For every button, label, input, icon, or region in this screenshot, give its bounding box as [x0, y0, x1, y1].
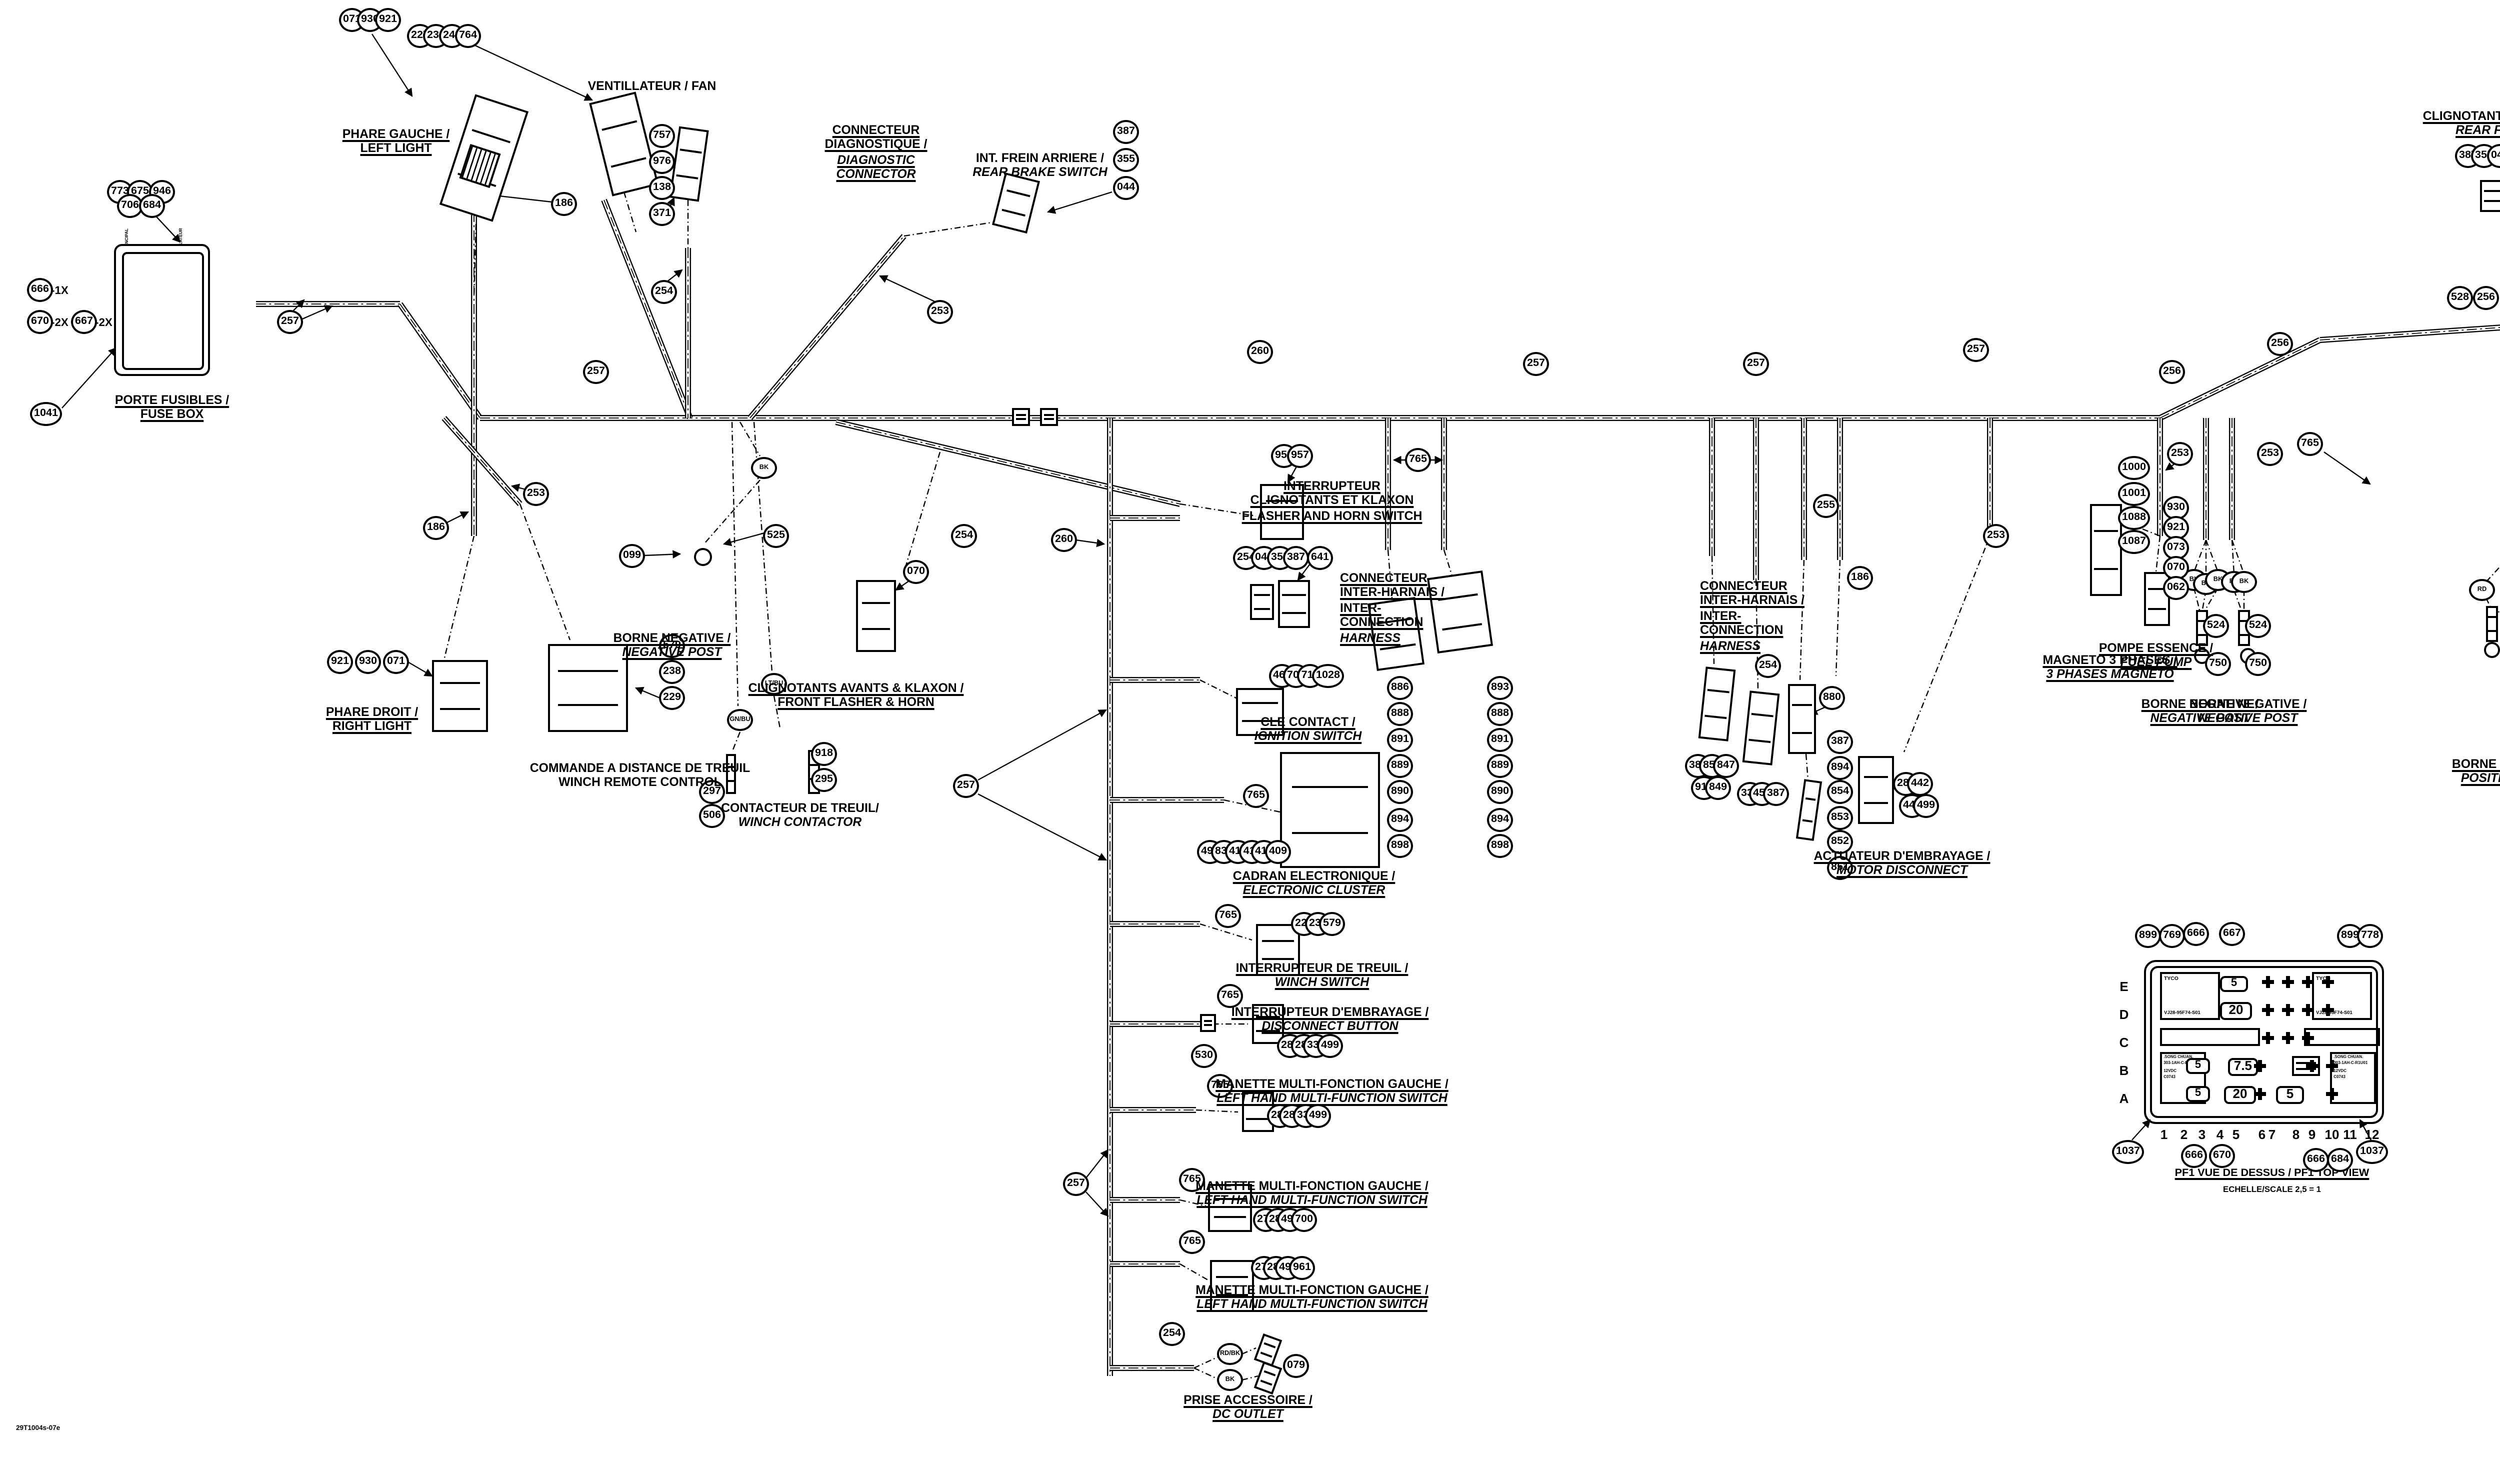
- callout-balloon-670: 670: [2209, 1144, 2235, 1168]
- callout-balloon-976: 976: [649, 150, 675, 174]
- callout-balloon-530: 530: [1191, 1044, 1217, 1068]
- leader-line: [2234, 590, 2242, 612]
- callout-balloon-684: 684: [139, 194, 165, 218]
- leader-line: [1242, 1376, 1258, 1380]
- callout-balloon-921: 921: [327, 650, 353, 674]
- pf1-column-number-5: 5: [2232, 1129, 2240, 1143]
- callout-balloon-253: 253: [927, 300, 953, 324]
- callout-balloon-894: 894: [1387, 808, 1413, 832]
- pf1-row-letter-B: B: [2119, 1065, 2129, 1079]
- pf1-relay-text: C0743: [2333, 1076, 2372, 1083]
- callout-arrow: [978, 794, 1106, 860]
- callout-balloon-666: 666: [2181, 1144, 2207, 1168]
- wiring-diagram-page: PF1 VUE DE DESSUS / PF1 TOP VIEW ECHELLE…: [0, 0, 2500, 1484]
- pf1-column-number-8: 8: [2292, 1129, 2300, 1143]
- label-line: LEFT LIGHT: [342, 143, 450, 158]
- callout-balloon-257: 257: [1063, 1172, 1089, 1196]
- component-label: PHARE DROIT /RIGHT LIGHT: [326, 706, 418, 735]
- callout-balloon-888: 888: [1387, 702, 1413, 726]
- label-line: CONNECTEUR: [825, 124, 927, 139]
- component-label: PHARE GAUCHE /LEFT LIGHT: [342, 128, 450, 157]
- callout-balloon-499: 499: [1913, 794, 1939, 818]
- callout-arrow: [1076, 540, 1104, 544]
- label-line: POMPE ESSENCE /: [2099, 642, 2213, 657]
- label-line: CLIGNOTANTS AVANTS & KLAXON /: [748, 682, 964, 697]
- pf1-relay-tyco: TYCOVJ28-95F74-S01: [2160, 972, 2220, 1020]
- callout-arrow: [472, 44, 592, 100]
- callout-balloon-260: 260: [1247, 340, 1273, 364]
- callout-balloon-1041: 1041: [30, 402, 62, 426]
- pf1-terminal-cross: [2322, 1004, 2334, 1016]
- label-line: CLIGNOTANTS ET KLAXON: [1242, 495, 1422, 510]
- callout-balloon-079: 079: [1283, 1354, 1309, 1378]
- component-label: CONNECTEURINTER-HARNAIS /INTER-CONNECTIO…: [1700, 580, 1804, 654]
- callout-balloon-229: 229: [659, 686, 685, 710]
- callout-balloon-889: 889: [1487, 754, 1513, 778]
- callout-arrow: [880, 276, 940, 304]
- label-line: CONNECTION: [1700, 624, 1804, 639]
- callout-balloon-387: 387: [1283, 546, 1309, 570]
- inline-connector: [1040, 408, 1058, 426]
- pf1-caption: PF1 VUE DE DESSUS / PF1 TOP VIEW ECHELLE…: [2175, 1168, 2369, 1197]
- callout-balloon-070: 070: [903, 560, 929, 584]
- pf1-caption-scale: ECHELLE/SCALE 2,5 = 1: [2175, 1183, 2369, 1198]
- callout-balloon-957: 957: [1287, 444, 1313, 468]
- component-label: CLIGNOTANTS AVANTS & KLAXON /FRONT FLASH…: [748, 682, 964, 711]
- callout-balloon-880: 880: [1819, 686, 1845, 710]
- magneto-connector: [2090, 504, 2122, 596]
- pf1-fuse-7.5: 7.5: [2228, 1058, 2258, 1076]
- callout-balloon-253: 253: [2167, 442, 2193, 466]
- callout-balloon-921: 921: [375, 8, 401, 32]
- callout-balloon-256: 256: [2473, 286, 2499, 310]
- label-line: INTER-: [1700, 609, 1804, 624]
- leader-line: [704, 480, 760, 544]
- callout-balloon-253: 253: [2257, 442, 2283, 466]
- label-line: VENTILLATEUR / FAN: [588, 80, 716, 95]
- label-line: MANETTE MULTI-FONCTION GAUCHE /: [1195, 1180, 1428, 1195]
- component-label: INTERRUPTEUR DE TREUIL /WINCH SWITCH: [1236, 962, 1408, 991]
- callout-balloon-849: 849: [1705, 776, 1731, 800]
- callout-balloon-260: 260: [1051, 528, 1077, 552]
- pf1-terminal-cross: [2254, 1088, 2266, 1100]
- component-label: VENTILLATEUR / FAN: [588, 80, 716, 95]
- label-line: INTER-HARNAIS /: [1700, 595, 1804, 610]
- pf1-terminal-cross: [2302, 1004, 2314, 1016]
- callout-balloon-666: 666: [2303, 1148, 2329, 1172]
- label-line: REAR BRAKE SWITCH: [972, 167, 1107, 182]
- label-line: REAR FLASHER: [2423, 125, 2500, 140]
- small-connector-641: [1278, 580, 1310, 628]
- callout-balloon-499: 499: [1317, 1034, 1343, 1058]
- label-line: LEFT HAND MULTI-FUNCTION SWITCH: [1215, 1093, 1448, 1108]
- callout-balloon-295: 295: [811, 768, 837, 792]
- label-line: MANETTE MULTI-FONCTION GAUCHE /: [1215, 1078, 1448, 1093]
- label-line: CONNECTEUR: [1700, 580, 1804, 595]
- pf1-fuse-20: 20: [2220, 1002, 2252, 1020]
- pf1-fuse-5: 5: [2186, 1086, 2210, 1102]
- pf1-relay-tyco: TYCOVJ28-95F74-S01: [2312, 972, 2372, 1020]
- callout-arrow: [300, 306, 332, 320]
- pf1-column-number-7: 7: [2268, 1129, 2276, 1143]
- pf1-fuse-5: 5: [2186, 1058, 2210, 1074]
- wire-color-tag-BK: BK: [2231, 571, 2257, 593]
- callout-balloon-891: 891: [1387, 728, 1413, 752]
- label-line: NEGATIVE POST: [2189, 713, 2307, 728]
- callout-balloon-1088: 1088: [2118, 506, 2150, 530]
- callout-balloon-853: 853: [1827, 806, 1853, 830]
- callout-balloon-847: 847: [1713, 754, 1739, 778]
- fuse-box-left: [114, 244, 210, 376]
- label-line: FUSE BOX: [115, 409, 229, 424]
- pf1-terminal-cross: [2262, 1004, 2274, 1016]
- callout-balloon-894: 894: [1827, 756, 1853, 780]
- component-label: CLE CONTACT /IGNITION SWITCH: [1254, 716, 1362, 745]
- label-line: CADRAN ELECTRONIQUE /: [1233, 870, 1395, 885]
- right-headlight-connector: [432, 660, 488, 732]
- label-line: CONNECTOR: [825, 168, 927, 183]
- callout-balloon-254: 254: [1159, 1322, 1185, 1346]
- label-line: INTERRUPTEUR DE TREUIL /: [1236, 962, 1408, 977]
- label-line: WINCH REMOTE CONTROL: [530, 777, 750, 792]
- callout-balloon-524: 524: [2245, 614, 2271, 638]
- callout-balloon-355: 355: [1113, 148, 1139, 172]
- callout-balloon-257: 257: [583, 360, 609, 384]
- pf1-relay-text: C0743: [2163, 1076, 2202, 1083]
- label-line: NEGATIVE POST: [613, 647, 731, 662]
- callout-balloon-254: 254: [951, 524, 977, 548]
- callout-balloon-765: 765: [1179, 1230, 1205, 1254]
- callout-balloon-886: 886: [1387, 676, 1413, 700]
- component-label: COMMANDE A DISTANCE DE TREUILWINCH REMOT…: [530, 762, 750, 791]
- label-line: FRONT FLASHER & HORN: [748, 697, 964, 712]
- leader-line: [1806, 754, 1808, 780]
- leader-line: [904, 452, 940, 572]
- label-line: MOTOR DISCONNECT: [1814, 865, 1990, 880]
- pf1-row-letter-C: C: [2119, 1037, 2129, 1051]
- pf1-terminal-cross: [2326, 1088, 2338, 1100]
- label-line: LEFT HAND MULTI-FUNCTION SWITCH: [1195, 1299, 1428, 1314]
- callout-balloon-524: 524: [2203, 614, 2229, 638]
- electronic-cluster: [1280, 752, 1380, 868]
- leader-line: [732, 732, 740, 752]
- pf1-row-letter-D: D: [2119, 1009, 2129, 1023]
- label-line: MANETTE MULTI-FONCTION GAUCHE /: [1195, 1284, 1428, 1299]
- positive-post: [2486, 606, 2498, 642]
- component-label: MANETTE MULTI-FONCTION GAUCHE /LEFT HAND…: [1215, 1078, 1448, 1107]
- label-line: INT. FREIN ARRIERE /: [972, 152, 1107, 167]
- negative-post-ring: [694, 548, 712, 566]
- leader-line: [2194, 540, 2206, 572]
- pf1-relay-text: 303-1AH-C-R1U01 12VDC: [2333, 1062, 2372, 1076]
- label-line: CLE CONTACT /: [1254, 716, 1362, 731]
- callout-arrow: [372, 34, 412, 96]
- label-line: BORNE NEGATIVE /: [2189, 698, 2307, 713]
- pf1-column-number-3: 3: [2198, 1129, 2206, 1143]
- callout-balloon-700: 700: [1291, 1208, 1317, 1232]
- callout-balloon-255: 255: [1813, 494, 1839, 518]
- callout-balloon-186: 186: [551, 192, 577, 216]
- component-label: CONTACTEUR DE TREUIL/WINCH CONTACTOR: [721, 802, 879, 831]
- pf1-row-letter-A: A: [2119, 1093, 2129, 1107]
- callout-balloon-750: 750: [2245, 652, 2271, 676]
- callout-balloon-890: 890: [1487, 780, 1513, 804]
- callout-arrow: [408, 662, 432, 676]
- callout-balloon-890: 890: [1387, 780, 1413, 804]
- component-label: BORNE NEGATIVE /NEGATIVE POST: [2189, 698, 2307, 727]
- leader-line: [732, 422, 738, 706]
- leader-line: [1194, 1368, 1220, 1380]
- callout-balloon-898: 898: [1487, 834, 1513, 858]
- callout-balloon-257: 257: [277, 310, 303, 334]
- callout-balloon-757: 757: [649, 124, 675, 148]
- pf1-terminal-cross: [2254, 1060, 2266, 1072]
- pf1-column-number-9: 9: [2308, 1129, 2316, 1143]
- pf1-row-letter-E: E: [2119, 981, 2128, 995]
- splice-530: [1200, 1014, 1216, 1032]
- pf1-terminal-cross: [2262, 1032, 2274, 1044]
- callout-balloon-667: 667-2X: [71, 310, 97, 334]
- leader-line: [2486, 464, 2500, 582]
- label-line: PRISE ACCESSOIRE /: [1183, 1394, 1312, 1409]
- label-line: COMMANDE A DISTANCE DE TREUIL: [530, 762, 750, 777]
- callout-balloon-238: 238: [659, 660, 685, 684]
- label-line: HARNESS: [1340, 631, 1444, 646]
- pf1-column-number-1: 1: [2160, 1129, 2168, 1143]
- front-flasher-horn-connector: [856, 580, 896, 652]
- component-label: MANETTE MULTI-FONCTION GAUCHE /LEFT HAND…: [1195, 1180, 1428, 1209]
- connector-880: [1788, 684, 1816, 754]
- label-line: CONTACTEUR DE TREUIL/: [721, 802, 879, 817]
- callout-balloon-254: 254: [1755, 654, 1781, 678]
- label-line: DC OUTLET: [1183, 1409, 1312, 1424]
- callout-balloon-186: 186: [423, 516, 449, 540]
- callout-balloon-062: 062: [2163, 576, 2189, 600]
- pf1-terminal-cross: [2322, 976, 2334, 988]
- callout-arrow: [62, 348, 116, 408]
- label-line: BORNE NEGATIVE /: [613, 632, 731, 647]
- balloon-suffix: -2X: [95, 314, 112, 336]
- leader-line: [1200, 680, 1240, 700]
- callout-arrow: [978, 710, 1106, 780]
- leader-line: [444, 536, 474, 660]
- balloon-suffix: -1X: [51, 282, 68, 304]
- pf1-column-number-6: 6: [2258, 1129, 2266, 1143]
- callout-arrow: [636, 688, 660, 698]
- pf1-column-number-11: 11: [2343, 1129, 2357, 1143]
- label-line: ACTUATEUR D'EMBRAYAGE /: [1814, 850, 1990, 865]
- component-label: BORNE POSITIVE /POSITIVE POST: [2452, 758, 2500, 787]
- component-label: INTERRUPTEURCLIGNOTANTS ET KLAXONFLASHER…: [1242, 480, 1422, 524]
- callout-balloon-1087: 1087: [2118, 530, 2150, 554]
- callout-balloon-769: 769: [2159, 924, 2185, 948]
- pf1-terminal-cross: [2282, 1004, 2294, 1016]
- callout-balloon-256: 256: [2159, 360, 2185, 384]
- callout-balloon-099: 099: [619, 544, 645, 568]
- callout-balloon-898: 898: [1387, 834, 1413, 858]
- callout-balloon-528: 528: [2447, 286, 2473, 310]
- callout-balloon-854: 854: [1827, 780, 1853, 804]
- small-connector-044: [1250, 584, 1274, 620]
- wire-color-tag-BK: BK: [751, 457, 777, 479]
- callout-balloon-961: 961: [1289, 1256, 1315, 1280]
- pf1-terminal-cross: [2302, 1032, 2314, 1044]
- pf1-terminal-cross: [2306, 1060, 2318, 1072]
- leader-line: [1196, 1110, 1238, 1112]
- callout-balloon-894: 894: [1487, 808, 1513, 832]
- label-line: INTERRUPTEUR: [1242, 480, 1422, 495]
- component-label: PORTE FUSIBLES /FUSE BOX: [115, 394, 229, 423]
- callout-balloon-254: 254: [651, 280, 677, 304]
- callout-balloon-888: 888: [1487, 702, 1513, 726]
- label-line: DIAGNOSTIC: [825, 153, 927, 168]
- callout-balloon-1037: 1037: [2356, 1140, 2388, 1164]
- callout-arrow: [1086, 1150, 1108, 1178]
- label-line: LEFT HAND MULTI-FUNCTION SWITCH: [1195, 1195, 1428, 1210]
- component-label: POMPE ESSENCE /FUEL PUMP: [2099, 642, 2213, 671]
- label-line: WINCH SWITCH: [1236, 977, 1408, 992]
- callout-balloon-1000: 1000: [2118, 456, 2150, 480]
- label-line: CONNECTEUR: [1340, 572, 1444, 587]
- drawing-number: 29T1004s-07e: [16, 1424, 60, 1432]
- label-line: INTERRUPTEUR D'EMBRAYAGE /: [1231, 1006, 1429, 1021]
- leader-line: [624, 192, 636, 232]
- callout-balloon-387: 387: [1113, 120, 1139, 144]
- leader-line: [1242, 1348, 1256, 1354]
- leader-line: [1904, 536, 1990, 752]
- callout-balloon-666: 666-1X: [27, 278, 53, 302]
- callout-balloon-765: 765: [1215, 904, 1241, 928]
- label-line: IGNITION SWITCH: [1254, 731, 1362, 746]
- label-line: INTER-: [1340, 601, 1444, 616]
- pf1-terminal-cross: [2262, 976, 2274, 988]
- callout-balloon-778: 778: [2357, 924, 2383, 948]
- label-line: FUEL PUMP: [2099, 657, 2213, 672]
- pf1-column-number-4: 4: [2216, 1129, 2224, 1143]
- callout-balloon-409: 409: [1265, 840, 1291, 864]
- callout-balloon-256: 256: [2267, 332, 2293, 356]
- callout-balloon-257: 257: [1523, 352, 1549, 376]
- callout-balloon-044: 044: [1113, 176, 1139, 200]
- motor-disconnect-connector: [1858, 756, 1894, 824]
- label-line: ELECTRONIC CLUSTER: [1233, 885, 1395, 900]
- callout-balloon-765: 765: [2297, 432, 2323, 456]
- pf1-fuse-20: 20: [2224, 1086, 2256, 1104]
- label-line: PHARE GAUCHE /: [342, 128, 450, 143]
- pf1-relay-part-number: VJ28-95F74-S01: [2164, 1010, 2216, 1016]
- label-line: POSITIVE POST: [2452, 773, 2500, 788]
- callout-balloon-889: 889: [1387, 754, 1413, 778]
- callout-balloon-891: 891: [1487, 728, 1513, 752]
- wire-color-tag-RDBK: RD/BK: [1217, 1343, 1243, 1365]
- label-line: PHARE DROIT /: [326, 706, 418, 721]
- callout-balloon-666: 666: [2183, 922, 2209, 946]
- leader-line: [2206, 540, 2218, 572]
- leader-line: [1194, 1356, 1220, 1368]
- component-label: CADRAN ELECTRONIQUE /ELECTRONIC CLUSTER: [1233, 870, 1395, 899]
- balloon-suffix: -2X: [51, 314, 68, 336]
- callout-balloon-253: 253: [1983, 524, 2009, 548]
- callout-balloon-1037: 1037: [2112, 1140, 2144, 1164]
- leader-line: [520, 504, 570, 640]
- callout-balloon-930: 930: [355, 650, 381, 674]
- pf1-column-number-2: 2: [2180, 1129, 2188, 1143]
- wire-color-tag-BK: BK: [1217, 1369, 1243, 1391]
- callout-balloon-1028: 1028: [1312, 664, 1344, 688]
- component-label: PRISE ACCESSOIRE /DC OUTLET: [1183, 1394, 1312, 1423]
- label-line: HARNESS: [1700, 639, 1804, 654]
- callout-balloon-387: 387: [1827, 730, 1853, 754]
- callout-arrow: [1048, 192, 1112, 212]
- label-line: RIGHT LIGHT: [326, 721, 418, 736]
- pf1-column-number-12: 12: [2365, 1129, 2379, 1143]
- callout-balloon-071: 071: [383, 650, 409, 674]
- callout-arrow: [724, 532, 768, 544]
- component-label: INTERRUPTEUR D'EMBRAYAGE /DISCONNECT BUT…: [1231, 1006, 1429, 1035]
- callout-balloon-1001: 1001: [2118, 482, 2150, 506]
- callout-balloon-893: 893: [1487, 676, 1513, 700]
- callout-balloon-257: 257: [953, 774, 979, 798]
- pf1-terminal-cross: [2282, 1032, 2294, 1044]
- callout-balloon-525: 525: [763, 524, 789, 548]
- callout-balloon-442: 442: [1907, 772, 1933, 796]
- component-label: CONNECTEURINTER-HARNAIS /INTER-CONNECTIO…: [1340, 572, 1444, 646]
- callout-balloon-641: 641: [1307, 546, 1333, 570]
- component-label: INT. FREIN ARRIERE /REAR BRAKE SWITCH: [972, 152, 1107, 181]
- rear-flasher-connector-2: [2480, 180, 2500, 212]
- pf1-relay-text: .SONG CHUAN.: [2333, 1055, 2372, 1062]
- component-label: BORNE NEGATIVE /NEGATIVE POST: [613, 632, 731, 661]
- leader-line: [740, 422, 760, 456]
- leader-line: [1836, 560, 1840, 676]
- callout-balloon-765: 765: [1243, 784, 1269, 808]
- inline-connector: [1012, 408, 1030, 426]
- callout-balloon-670: 670-2X: [27, 310, 53, 334]
- callout-balloon-138: 138: [649, 176, 675, 200]
- callout-balloon-253: 253: [523, 482, 549, 506]
- callout-balloon-387: 387: [1763, 782, 1789, 806]
- label-line: BORNE POSITIVE /: [2452, 758, 2500, 773]
- callout-balloon-764: 764: [455, 24, 481, 48]
- callout-balloon-765: 765: [1405, 448, 1431, 472]
- component-label: ACTUATEUR D'EMBRAYAGE /MOTOR DISCONNECT: [1814, 850, 1990, 879]
- pf1-column-number-10: 10: [2325, 1129, 2339, 1143]
- callout-balloon-899: 899: [2135, 924, 2161, 948]
- label-line: DIAGNOSTIQUE /: [825, 139, 927, 154]
- callout-balloon-684: 684: [2327, 1148, 2353, 1172]
- component-label: CLIGNOTANTS ARRIÈRES /REAR FLASHER: [2423, 110, 2500, 139]
- label-line: CONNECTION: [1340, 616, 1444, 631]
- label-line: PORTE FUSIBLES /: [115, 394, 229, 409]
- pf1-terminal-cross: [2282, 976, 2294, 988]
- label-line: DISCONNECT BUTTON: [1231, 1021, 1429, 1036]
- component-label: CONNECTEURDIAGNOSTIQUE /DIAGNOSTICCONNEC…: [825, 124, 927, 183]
- callout-balloon-579: 579: [1319, 912, 1345, 936]
- label-line: CLIGNOTANTS ARRIÈRES /: [2423, 110, 2500, 125]
- callout-arrow: [2324, 452, 2370, 484]
- wire-color-tag-RD: RD: [2469, 579, 2495, 601]
- pf1-fuse-5: 5: [2220, 976, 2248, 992]
- callout-balloon-257: 257: [1743, 352, 1769, 376]
- label-line: INTER-HARNAIS /: [1340, 587, 1444, 602]
- callout-balloon-918: 918: [811, 742, 837, 766]
- callout-balloon-186: 186: [1847, 566, 1873, 590]
- leader-line: [2156, 536, 2160, 572]
- callout-arrow: [1086, 1192, 1108, 1216]
- pf1-terminal-cross: [2302, 976, 2314, 988]
- leader-line: [1180, 1264, 1208, 1280]
- callout-balloon-371: 371: [649, 202, 675, 226]
